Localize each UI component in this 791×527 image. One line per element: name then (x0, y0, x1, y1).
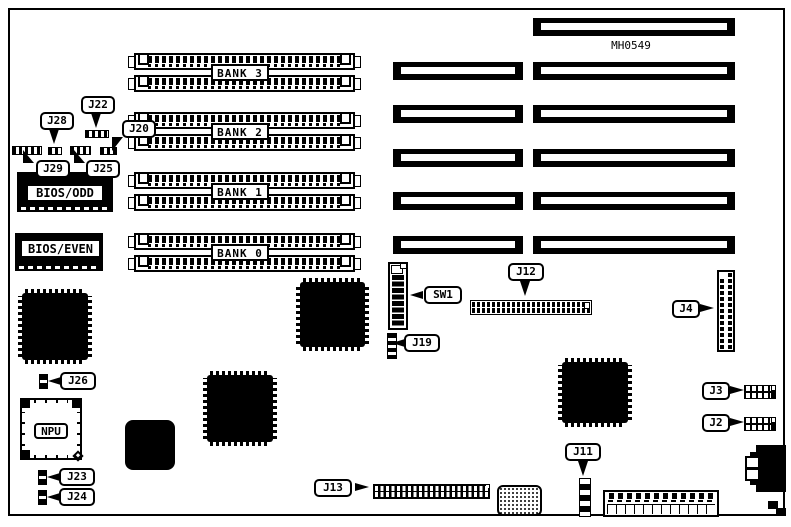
slot-opening (541, 67, 727, 74)
callout-j22: J22 (81, 96, 115, 114)
pin1-diamond-mark (72, 450, 83, 461)
pin-row (148, 175, 341, 182)
pin-row (21, 207, 109, 210)
pin-header-j3 (744, 385, 776, 399)
callout-pointer (520, 281, 530, 296)
pin-header-j11 (579, 478, 591, 517)
jumper-block-j22 (85, 130, 109, 138)
callout-j24: J24 (59, 488, 95, 506)
pin-row (375, 486, 488, 491)
npu-socket: NPU (20, 398, 82, 460)
pin-row (746, 393, 771, 398)
pin-row (746, 386, 771, 391)
latch-icon (138, 257, 149, 267)
callout-j29: J29 (36, 160, 70, 178)
callout-pointer (355, 483, 369, 491)
speaker-buzzer (497, 485, 542, 516)
pin-row (148, 86, 341, 89)
diamond-center (76, 453, 80, 457)
latch-icon (340, 77, 351, 87)
qfp-chip (18, 289, 92, 364)
isa-slot (533, 105, 735, 123)
pin-row (210, 442, 270, 446)
corner-mark (21, 450, 30, 459)
pin-column (720, 273, 724, 349)
pin-row (607, 504, 715, 514)
chip-body (22, 293, 88, 360)
callout-pointer (730, 386, 744, 394)
latch-icon (340, 136, 351, 146)
pin-row (19, 266, 99, 269)
callout-pointer (700, 304, 714, 312)
pin1-notch (400, 264, 406, 269)
pin-row (472, 308, 590, 313)
slot-opening (401, 154, 515, 161)
slot-opening (541, 154, 727, 161)
bios-even-label: BIOS/EVEN (21, 240, 100, 257)
slot-opening (401, 241, 515, 248)
pin-row (608, 500, 714, 502)
isa-slot (393, 105, 523, 123)
pin-header-j12 (470, 300, 592, 315)
latch-icon (340, 235, 351, 245)
qfp-chip (296, 278, 369, 351)
callout-j20: J20 (122, 120, 156, 138)
pin1-mark (772, 386, 775, 390)
pin-row (472, 302, 590, 307)
chip-body (300, 282, 365, 347)
pin-row (273, 378, 277, 439)
callout-sw1: SW1 (424, 286, 462, 304)
square-chip (125, 420, 175, 470)
jumper-block-j26 (39, 374, 48, 389)
callout-j13: J13 (314, 479, 352, 497)
callout-pointer (410, 291, 423, 299)
jumper-block-j24 (38, 490, 47, 505)
pin-header-j4 (717, 270, 735, 352)
dip-switch-sw1 (388, 262, 408, 330)
pin-row (22, 412, 25, 446)
pin-row (88, 296, 92, 357)
latch-icon (138, 196, 149, 206)
board-part-number: MH0549 (595, 39, 667, 52)
edge-plug (745, 468, 760, 481)
slot-opening (401, 110, 515, 117)
slot-opening (541, 197, 727, 204)
latch-icon (138, 77, 149, 87)
callout-pointer (74, 150, 85, 163)
pin-row (375, 492, 488, 497)
pin-row (628, 365, 632, 420)
pin-row (34, 455, 68, 458)
slot-opening (541, 241, 727, 248)
bank-3-label: BANK 3 (211, 64, 269, 81)
callout-j25: J25 (86, 160, 120, 178)
chip-body (562, 362, 628, 423)
slot-opening (401, 197, 515, 204)
latch-icon (138, 55, 149, 65)
chip-body (207, 375, 273, 442)
pin-row (607, 493, 715, 499)
callout-pointer (578, 461, 588, 476)
jumper-block-j28 (48, 147, 62, 155)
latch-icon (340, 257, 351, 267)
jumper-block-j23 (38, 470, 47, 485)
qfp-chip (203, 371, 277, 446)
pin-row (746, 418, 771, 423)
callout-j12: J12 (508, 263, 544, 281)
callout-pointer (112, 137, 123, 151)
isa-slot (393, 192, 523, 210)
pin-row (746, 425, 771, 430)
power-connector (603, 490, 719, 517)
pin-row (148, 266, 341, 269)
callout-pointer (49, 129, 59, 144)
slot-opening (541, 23, 727, 30)
callout-j28: J28 (40, 112, 74, 130)
pin-row (34, 400, 68, 403)
rom-chip-bios-even: BIOS/EVEN (15, 233, 103, 271)
bank-1-label: BANK 1 (211, 183, 269, 200)
pin-row (365, 285, 369, 344)
pin1-mark (486, 485, 489, 488)
isa-slot (533, 18, 735, 36)
isa-slot (393, 62, 523, 80)
pin-row (25, 360, 85, 364)
pin-row (303, 347, 362, 351)
callout-j19: J19 (404, 334, 440, 352)
keyboard-din-connector (756, 445, 786, 492)
motherboard-diagram: BANK 3 BANK 2 BANK 1 BANK 0 MH0549 (0, 0, 791, 527)
callout-j23: J23 (59, 468, 95, 486)
slot-opening (401, 67, 515, 74)
switch-positions (392, 275, 404, 326)
pin1-mark (720, 273, 724, 277)
pin-row (148, 145, 341, 148)
isa-slot (533, 192, 735, 210)
latch-icon (340, 174, 351, 184)
bank-0-label: BANK 0 (211, 244, 269, 261)
latch-icon (340, 196, 351, 206)
callout-j11: J11 (565, 443, 601, 461)
isa-slot (533, 236, 735, 254)
corner-mark (72, 399, 81, 408)
corner-mark (21, 399, 30, 408)
pin-row (77, 412, 80, 446)
callout-j26: J26 (60, 372, 96, 390)
pin-header-j13 (373, 484, 490, 499)
isa-slot (393, 236, 523, 254)
board-corner-step (776, 508, 786, 516)
callout-j4: J4 (672, 300, 700, 318)
bios-odd-label: BIOS/ODD (27, 185, 103, 201)
callout-pointer (23, 150, 34, 163)
callout-j2: J2 (702, 414, 730, 432)
isa-slot (533, 62, 735, 80)
latch-icon (138, 174, 149, 184)
npu-label: NPU (34, 423, 68, 439)
latch-icon (138, 235, 149, 245)
callout-j3: J3 (702, 382, 730, 400)
qfp-chip (558, 358, 632, 427)
latch-icon (340, 55, 351, 65)
pin1-mark (584, 302, 590, 309)
rom-chip-bios-odd: BIOS/ODD (17, 172, 113, 212)
latch-icon (340, 114, 351, 124)
callout-pointer (730, 418, 744, 426)
bank-2-label: BANK 2 (211, 123, 269, 140)
pin-row (148, 115, 341, 122)
pin-row (565, 423, 625, 427)
pin-header-j2 (744, 417, 776, 431)
pin-row (148, 236, 341, 243)
pin-row (148, 56, 341, 63)
isa-slot (533, 149, 735, 167)
pin-column (728, 273, 732, 349)
isa-slot (393, 149, 523, 167)
pin-row (148, 205, 341, 208)
pin1-mark (772, 418, 775, 422)
callout-pointer (91, 113, 101, 128)
slot-opening (541, 110, 727, 117)
